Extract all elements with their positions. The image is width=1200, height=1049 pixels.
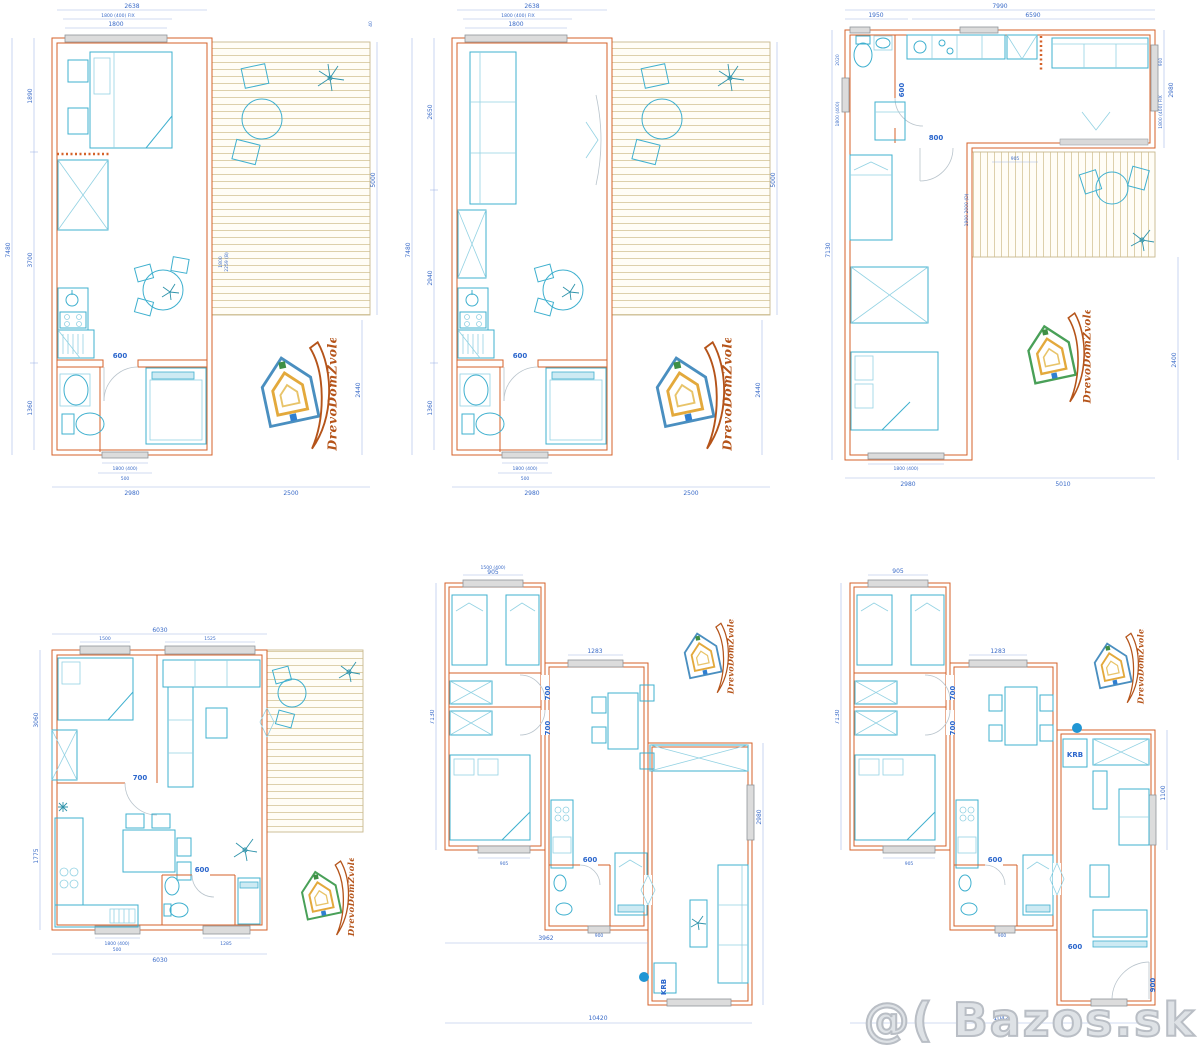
window bbox=[850, 27, 870, 33]
window bbox=[463, 580, 523, 587]
terrace bbox=[267, 650, 363, 832]
logo-house-icon bbox=[1024, 313, 1084, 402]
bazos-watermark: @( Bazos.sk bbox=[864, 993, 1196, 1047]
door-label: 700 bbox=[544, 721, 552, 736]
window bbox=[102, 452, 148, 458]
house-shell bbox=[52, 35, 212, 458]
logo-text: DrevoDomZvolen bbox=[720, 338, 735, 452]
dim-label: 6590 bbox=[1025, 12, 1040, 19]
dim-label: 7130 bbox=[430, 709, 436, 724]
dim-label: 905 bbox=[487, 569, 499, 576]
floor-plan-4: 700 bbox=[30, 610, 390, 1010]
dim-label: 2980 bbox=[900, 481, 915, 488]
door-label: 800 bbox=[929, 134, 944, 142]
window bbox=[747, 785, 754, 840]
dim-label: 2940 bbox=[427, 270, 434, 285]
dim-label: 5010 bbox=[1055, 481, 1070, 488]
window bbox=[667, 999, 731, 1006]
window bbox=[1149, 795, 1156, 845]
dim-label: 2980 bbox=[756, 809, 763, 824]
dim-label: 10420 bbox=[588, 1015, 607, 1022]
door-label: 600 bbox=[898, 83, 906, 98]
window bbox=[203, 926, 250, 934]
dim-label: 1890 bbox=[27, 88, 34, 103]
fireplace-label: KRB bbox=[1067, 751, 1083, 759]
logo-house-icon bbox=[257, 342, 329, 448]
window bbox=[868, 580, 928, 587]
dim-label: 1800 (400) FIX bbox=[501, 13, 534, 19]
door-label: 600 bbox=[513, 352, 528, 360]
floor-plan-3: 600 800 bbox=[820, 0, 1200, 510]
floor-plans-collage: 600 2638 1800 (400) FIX 1800 7480 1890 3… bbox=[0, 0, 1200, 1049]
logo-text: DrevoDomZvolen bbox=[1082, 310, 1094, 404]
dim-label: 900 bbox=[595, 933, 604, 939]
dim-label: 1800 bbox=[218, 256, 224, 268]
terrace bbox=[972, 152, 1155, 257]
dim-label: 2440 bbox=[755, 382, 762, 397]
door-label: 700 bbox=[544, 686, 552, 701]
window bbox=[502, 452, 548, 458]
dim-label: 1800 (400) bbox=[894, 466, 919, 472]
dim-label: 1800 (400) bbox=[513, 466, 538, 472]
dim-label: 1100 bbox=[1160, 785, 1167, 800]
dim-label: 6030 bbox=[152, 627, 167, 634]
dim-label: 2500 bbox=[683, 490, 698, 497]
dim-label: 1800 (400) bbox=[835, 101, 841, 126]
window bbox=[165, 646, 255, 654]
dim-label: 7480 bbox=[405, 242, 412, 257]
dim-label: 1360 bbox=[427, 400, 434, 415]
drevodom-logo: DrevoDomZvolen bbox=[255, 338, 350, 453]
window bbox=[478, 846, 530, 853]
door-label: 600 bbox=[988, 856, 1003, 864]
terrace bbox=[212, 42, 370, 315]
door-label: 600 bbox=[195, 866, 210, 874]
logo-house-icon bbox=[652, 342, 724, 448]
dim-label: 1950 bbox=[868, 12, 883, 19]
fridge-icon bbox=[58, 802, 68, 812]
dim-label: 7480 bbox=[5, 242, 12, 257]
dim-label: 7130 bbox=[825, 242, 832, 257]
window bbox=[868, 453, 944, 459]
logo-text: DrevoDomZvolen bbox=[325, 338, 340, 452]
door-label: 700 bbox=[133, 774, 148, 782]
dim-label: 1285 bbox=[220, 941, 232, 947]
dim-label: 2638 bbox=[524, 3, 539, 10]
logo-house-icon bbox=[1091, 633, 1138, 702]
logo-house-icon bbox=[681, 623, 728, 692]
dim-label: 1283 bbox=[990, 648, 1005, 655]
door-label: 700 bbox=[949, 721, 957, 736]
dim-label: 905 bbox=[905, 861, 914, 867]
dim-label: 1800 (400) FIX bbox=[1158, 95, 1164, 128]
dim-label: 1525 bbox=[204, 636, 216, 642]
dim-label: 3962 bbox=[538, 935, 553, 942]
door-label: 600 bbox=[1068, 943, 1083, 951]
window bbox=[465, 35, 567, 42]
window bbox=[568, 660, 623, 667]
door-label: 600 bbox=[113, 352, 128, 360]
drevodom-logo: DrevoDomZvolen bbox=[1090, 628, 1152, 708]
dim-label: 2980 bbox=[1168, 82, 1175, 97]
window bbox=[883, 846, 935, 853]
dim-label: 1900 2000 (D) bbox=[964, 193, 970, 226]
window bbox=[1151, 45, 1158, 111]
dim-label: 2638 bbox=[124, 3, 139, 10]
dim-label: 905 bbox=[892, 568, 904, 575]
drevodom-logo: DrevoDomZvolen bbox=[297, 858, 363, 938]
window bbox=[65, 35, 167, 42]
logo-text: DrevoDomZvolen bbox=[1135, 628, 1145, 705]
fireplace-icon bbox=[1072, 723, 1082, 733]
dim-label: 7990 bbox=[992, 3, 1007, 10]
window bbox=[969, 660, 1027, 667]
dim-label: 6030 bbox=[152, 957, 167, 964]
fireplace-label: KRB bbox=[660, 979, 668, 995]
logo-text: DrevoDomZvolen bbox=[725, 618, 735, 695]
terrace bbox=[612, 42, 770, 315]
dim-label: 1775 bbox=[33, 848, 40, 863]
dim-label: 2259 (B) bbox=[224, 252, 230, 272]
dim-label: 1800 bbox=[508, 21, 523, 28]
dim-label: 900 bbox=[1158, 58, 1164, 67]
dim-label: 7130 bbox=[835, 709, 841, 724]
drevodom-logo: DrevoDomZvolen bbox=[680, 618, 742, 698]
dim-label: 3700 bbox=[27, 252, 34, 267]
logo-text: DrevoDomZvolen bbox=[347, 858, 357, 937]
dim-label: 1800 (400) FIX bbox=[101, 13, 134, 19]
dim-label: 1800 bbox=[108, 21, 123, 28]
dim-label: 1283 bbox=[587, 648, 602, 655]
window bbox=[80, 646, 130, 654]
dim-label: 905 bbox=[1011, 156, 1020, 162]
dim-label: 1800 (400) bbox=[105, 941, 130, 947]
dim-label: 1360 bbox=[27, 400, 34, 415]
logo-house-icon bbox=[298, 861, 348, 935]
dim-label: 5000 bbox=[770, 172, 777, 187]
window bbox=[842, 78, 849, 112]
window bbox=[995, 926, 1015, 933]
window bbox=[960, 27, 998, 33]
dim-label: 2020 bbox=[835, 54, 841, 66]
dim-label: 2440 bbox=[355, 382, 362, 397]
dim-label: 2980 bbox=[524, 490, 539, 497]
fireplace-icon bbox=[639, 972, 649, 982]
dim-label: 905 bbox=[500, 861, 509, 867]
dim-label: 900 bbox=[998, 933, 1007, 939]
house-shell bbox=[452, 35, 612, 458]
dim-label: 2500 bbox=[283, 490, 298, 497]
door-label: 900 bbox=[1149, 978, 1157, 993]
window bbox=[588, 926, 610, 933]
door-label: 600 bbox=[583, 856, 598, 864]
dim-label: 3060 bbox=[33, 712, 40, 727]
dim-label: 2400 bbox=[1171, 352, 1178, 367]
door-label: 700 bbox=[949, 686, 957, 701]
dim-label: 500 bbox=[113, 947, 122, 953]
tv-bench bbox=[1060, 139, 1148, 145]
drevodom-logo: DrevoDomZvolen bbox=[650, 338, 745, 453]
dim-label: 1800 (400) bbox=[113, 466, 138, 472]
dim-label: 1500 bbox=[99, 636, 111, 642]
dim-label: 500 bbox=[521, 476, 530, 482]
dim-label: 2980 bbox=[124, 490, 139, 497]
drevodom-logo: DrevoDomZvolen bbox=[1022, 310, 1102, 405]
dim-label: 40 bbox=[368, 21, 374, 27]
dim-label: 2650 bbox=[427, 104, 434, 119]
dim-label: 5000 bbox=[370, 172, 377, 187]
dim-label: 500 bbox=[121, 476, 130, 482]
